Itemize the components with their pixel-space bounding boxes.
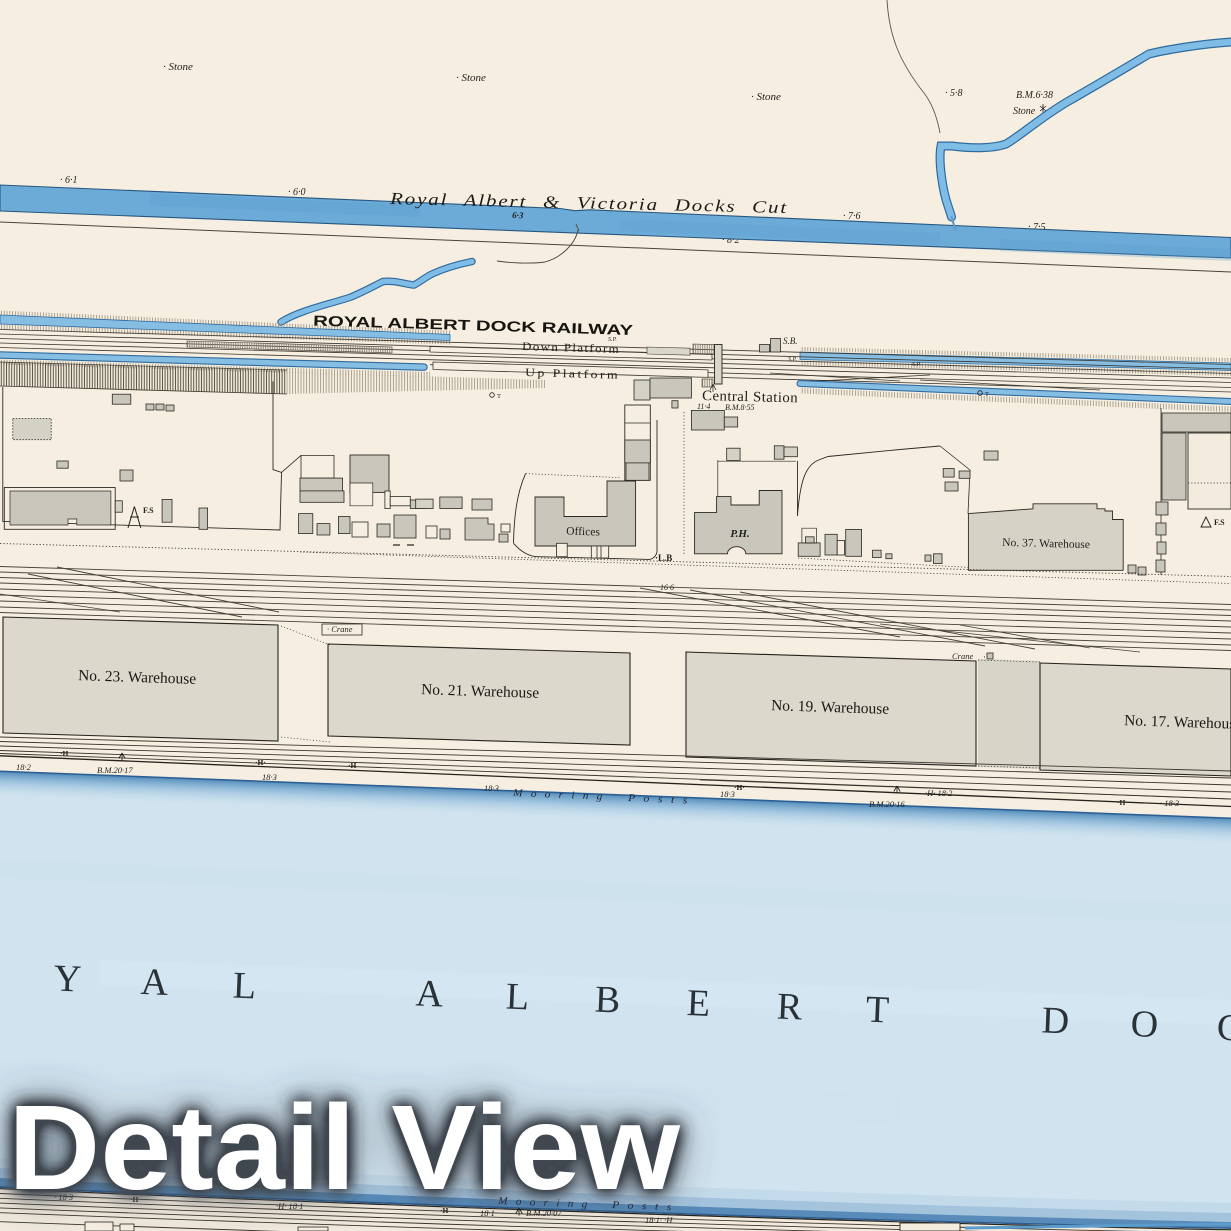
svg-text:B.M.6·38: B.M.6·38 bbox=[1016, 90, 1053, 101]
svg-text:18·2: 18·2 bbox=[16, 762, 32, 772]
svg-text:·H·: ·H· bbox=[255, 758, 266, 767]
svg-text:S.P.: S.P. bbox=[608, 337, 617, 343]
svg-text:·H: ·H bbox=[348, 761, 357, 770]
svg-text:Stone: Stone bbox=[1013, 106, 1036, 117]
svg-text:S.P.: S.P. bbox=[788, 357, 797, 363]
svg-text:A: A bbox=[140, 961, 170, 1004]
svg-text:No. 37. Warehouse: No. 37. Warehouse bbox=[1002, 537, 1090, 551]
svg-text:18·3: 18·3 bbox=[484, 783, 499, 793]
svg-text:C: C bbox=[1216, 1006, 1231, 1049]
svg-text:F.S: F.S bbox=[143, 506, 154, 515]
svg-text:·H·: ·H· bbox=[734, 783, 745, 792]
svg-text:·H: ·H bbox=[1117, 798, 1126, 807]
svg-text:·H· 18·2: ·H· 18·2 bbox=[925, 788, 953, 798]
svg-text:· Stone: · Stone bbox=[456, 72, 486, 84]
svg-text:B.M.20·16: B.M.20·16 bbox=[869, 799, 905, 809]
svg-text:T: T bbox=[985, 391, 989, 398]
svg-text:E: E bbox=[686, 982, 711, 1025]
svg-text:Detail View: Detail View bbox=[8, 1079, 681, 1215]
svg-text:L: L bbox=[232, 965, 257, 1008]
svg-text:· Stone: · Stone bbox=[751, 91, 781, 103]
svg-text:·16·6: ·16·6 bbox=[658, 583, 674, 592]
svg-text:B.M.20·17: B.M.20·17 bbox=[97, 765, 133, 775]
svg-text:· 6·1: · 6·1 bbox=[60, 175, 78, 186]
svg-text:· Stone: · Stone bbox=[163, 61, 193, 73]
svg-text:R: R bbox=[776, 985, 804, 1028]
svg-text:Y: Y bbox=[53, 957, 82, 1000]
svg-text:Crane: Crane bbox=[952, 651, 973, 661]
svg-text:· 5·8: · 5·8 bbox=[945, 88, 963, 99]
svg-text:· Crane: · Crane bbox=[327, 624, 353, 634]
svg-text:· 18·3: · 18·3 bbox=[1160, 798, 1179, 808]
svg-text:S.P.: S.P. bbox=[912, 362, 921, 368]
svg-text:6·3: 6·3 bbox=[512, 210, 524, 220]
svg-text:P.H.: P.H. bbox=[730, 528, 749, 540]
svg-text:· 6·0: · 6·0 bbox=[288, 187, 306, 198]
svg-text:S.B.: S.B. bbox=[783, 336, 798, 346]
svg-text:T: T bbox=[865, 989, 890, 1032]
svg-text:18·1· ·H: 18·1· ·H bbox=[645, 1215, 673, 1225]
svg-text:L: L bbox=[505, 976, 530, 1019]
svg-text:A: A bbox=[415, 972, 445, 1015]
svg-text:18·3: 18·3 bbox=[720, 789, 735, 799]
svg-text:B.M.8·55: B.M.8·55 bbox=[725, 403, 755, 412]
svg-text:T: T bbox=[497, 393, 501, 400]
svg-text:O: O bbox=[1130, 1003, 1159, 1046]
svg-text:18·3: 18·3 bbox=[262, 772, 277, 782]
svg-text:B: B bbox=[594, 978, 621, 1021]
svg-text:D: D bbox=[1041, 999, 1070, 1042]
svg-text:Offices: Offices bbox=[566, 526, 601, 539]
svg-text:F.S: F.S bbox=[1214, 518, 1225, 527]
svg-text:·H: ·H bbox=[60, 749, 69, 758]
svg-text:11·4: 11·4 bbox=[697, 402, 710, 411]
